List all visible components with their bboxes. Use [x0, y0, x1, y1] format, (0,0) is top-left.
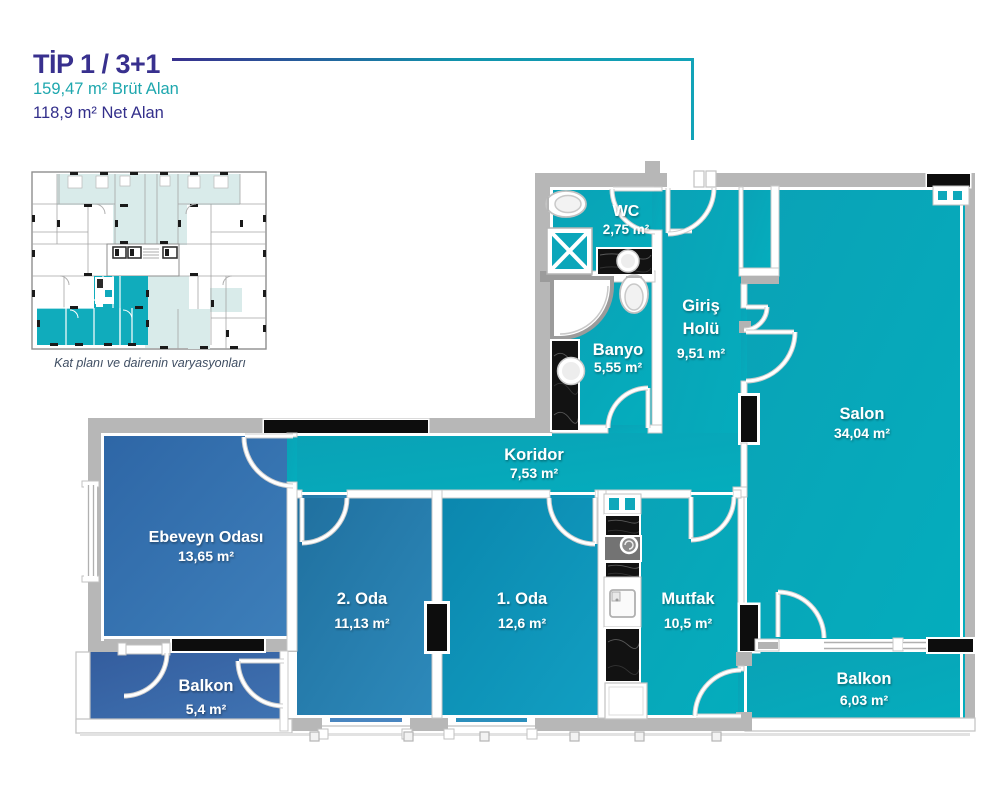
- svg-text:13,65 m²: 13,65 m²: [178, 548, 234, 564]
- svg-text:Salon: Salon: [840, 405, 885, 423]
- svg-text:34,04 m²: 34,04 m²: [834, 425, 890, 441]
- svg-text:Mutfak: Mutfak: [661, 590, 715, 608]
- svg-text:Giriş: Giriş: [682, 297, 720, 315]
- svg-text:Balkon: Balkon: [836, 670, 891, 688]
- svg-text:1. Oda: 1. Oda: [497, 590, 548, 608]
- svg-text:7,53 m²: 7,53 m²: [510, 465, 559, 481]
- svg-text:9,51 m²: 9,51 m²: [677, 345, 726, 361]
- svg-text:Kat planı ve dairenin varyasyo: Kat planı ve dairenin varyasyonları: [54, 356, 246, 370]
- svg-text:10,5 m²: 10,5 m²: [664, 615, 713, 631]
- svg-text:6,03 m²: 6,03 m²: [840, 692, 889, 708]
- svg-text:2,75 m²: 2,75 m²: [603, 222, 650, 237]
- svg-text:Holü: Holü: [683, 320, 720, 338]
- svg-text:5,55 m²: 5,55 m²: [594, 359, 643, 375]
- svg-text:WC: WC: [613, 203, 640, 220]
- svg-text:Ebeveyn Odası: Ebeveyn Odası: [149, 529, 264, 546]
- svg-text:TİP 1 / 3+1: TİP 1 / 3+1: [33, 49, 160, 79]
- svg-text:12,6 m²: 12,6 m²: [498, 615, 547, 631]
- svg-text:Banyo: Banyo: [593, 341, 643, 359]
- svg-text:Balkon: Balkon: [178, 677, 233, 695]
- svg-text:2. Oda: 2. Oda: [337, 590, 388, 608]
- svg-text:118,9 m² Net Alan: 118,9 m² Net Alan: [33, 104, 164, 122]
- svg-text:Koridor: Koridor: [504, 446, 564, 464]
- svg-text:11,13 m²: 11,13 m²: [334, 615, 390, 631]
- svg-text:159,47 m² Brüt Alan: 159,47 m² Brüt Alan: [33, 80, 179, 98]
- svg-text:5,4 m²: 5,4 m²: [186, 701, 227, 717]
